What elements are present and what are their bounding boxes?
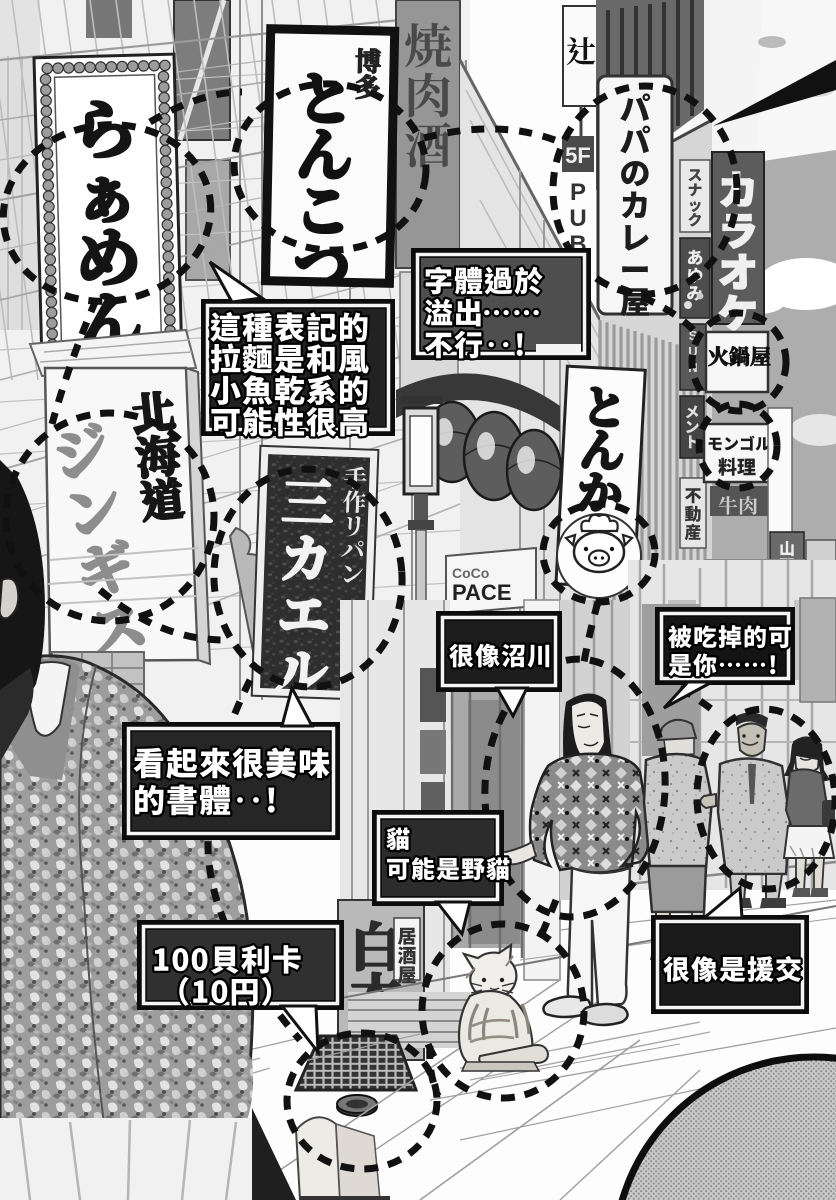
svg-text:PACE: PACE: [452, 580, 512, 605]
svg-text:CoCo: CoCo: [452, 565, 489, 581]
svg-text:P: P: [570, 179, 586, 206]
svg-text:U: U: [569, 205, 586, 232]
svg-text:5F: 5F: [565, 143, 591, 168]
